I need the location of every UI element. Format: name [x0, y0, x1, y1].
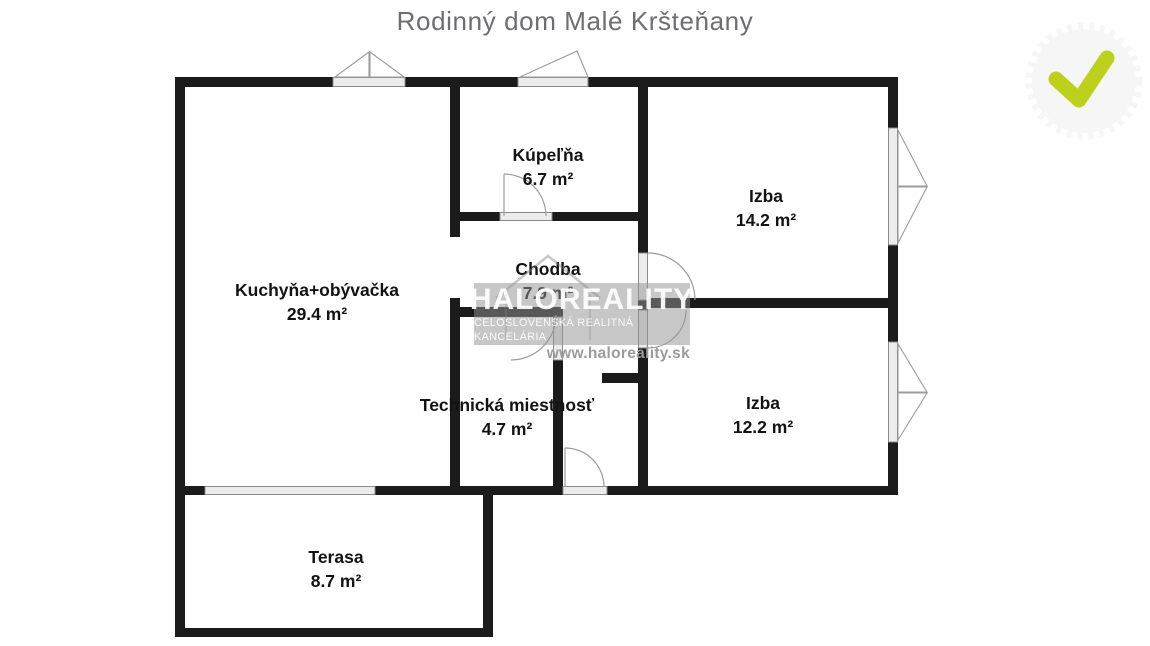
- room-area: 12.2 m²: [733, 415, 793, 439]
- door-arc-entrance: [565, 448, 604, 487]
- room-label-technicka: Technická miestnosť 4.7 m²: [420, 393, 594, 441]
- window-casement-bathroom: [520, 51, 588, 77]
- floorplan-page: Rodinný dom Malé Kršteňany: [0, 0, 1150, 646]
- room-name: Izba: [733, 391, 793, 415]
- room-area: 29.4 m²: [235, 302, 399, 326]
- room-name: Chodba: [515, 257, 580, 281]
- window-sill-izba2-right: [889, 342, 898, 442]
- room-label-chodba: Chodba 7.9 m²: [515, 257, 580, 305]
- room-name: Izba: [736, 184, 796, 208]
- passage-opening: [449, 237, 461, 298]
- room-area: 7.9 m²: [515, 281, 580, 305]
- room-area: 14.2 m²: [736, 208, 796, 232]
- room-name: Technická miestnosť: [420, 393, 594, 417]
- window-sill-bath-top: [518, 78, 588, 87]
- room-label-izba-1: Izba 14.2 m²: [736, 184, 796, 232]
- door-sill-bathroom: [500, 213, 552, 221]
- room-area: 6.7 m²: [513, 167, 584, 191]
- door-sill-entrance: [563, 487, 607, 495]
- window-sill-terrace: [205, 487, 375, 495]
- door-arc-technicka: [511, 315, 556, 360]
- window-casement-izba2: [898, 344, 927, 440]
- approved-badge: [1029, 26, 1139, 136]
- window-casement-kitchen: [335, 52, 404, 77]
- window-casement-izba1: [898, 130, 927, 243]
- room-area: 8.7 m²: [308, 569, 363, 593]
- room-area: 4.7 m²: [420, 417, 594, 441]
- floorplan-drawing: [0, 0, 1150, 646]
- window-sill-izba1-right: [889, 128, 898, 245]
- window-sill-kitchen-top: [333, 78, 405, 87]
- room-label-kuchyna-obyvacka: Kuchyňa+obývačka 29.4 m²: [235, 278, 399, 326]
- room-label-izba-2: Izba 12.2 m²: [733, 391, 793, 439]
- room-name: Kuchyňa+obývačka: [235, 278, 399, 302]
- door-arc-izba1: [648, 253, 695, 300]
- room-name: Terasa: [308, 545, 363, 569]
- room-label-kupelna: Kúpeľňa 6.7 m²: [513, 143, 584, 191]
- room-name: Kúpeľňa: [513, 143, 584, 167]
- door-arc-izba2: [648, 310, 686, 348]
- door-sill-izba2: [639, 310, 648, 348]
- door-sill-izba1: [639, 253, 648, 300]
- room-label-terasa: Terasa 8.7 m²: [308, 545, 363, 593]
